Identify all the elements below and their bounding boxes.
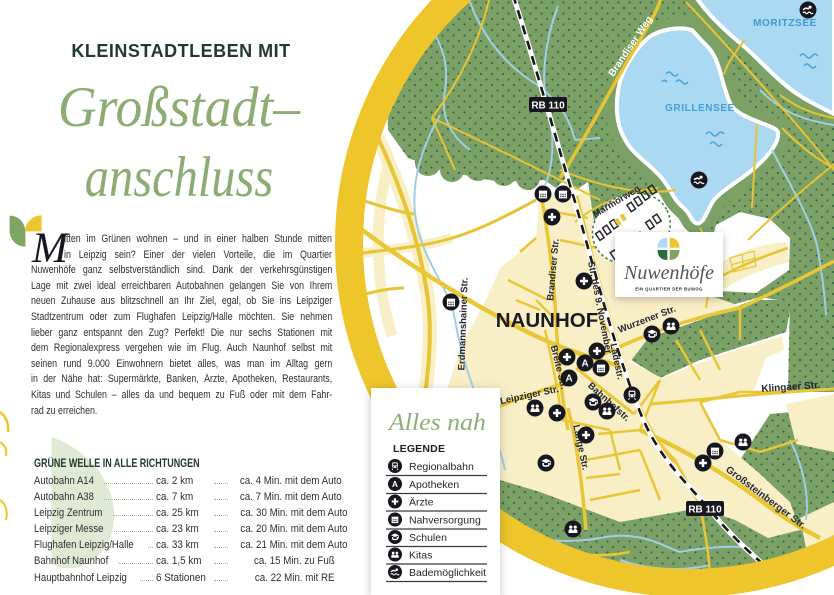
- svg-text:Alles nah: Alles nah: [387, 410, 486, 436]
- svg-text:Apotheken: Apotheken: [409, 479, 459, 491]
- svg-text:Bademöglichkeit: Bademöglichkeit: [409, 567, 486, 579]
- svg-text:NAUNHOF: NAUNHOF: [496, 309, 599, 332]
- svg-text:Nuwenhöfe: Nuwenhöfe: [623, 262, 714, 284]
- svg-text:LEGENDE: LEGENDE: [393, 443, 445, 455]
- svg-text:MORITZSEE: MORITZSEE: [753, 18, 817, 29]
- svg-text:RB 110: RB 110: [531, 101, 565, 112]
- svg-text:Ärzte: Ärzte: [409, 497, 434, 509]
- svg-text:Schulen: Schulen: [409, 532, 447, 544]
- svg-text:Kitas: Kitas: [409, 550, 432, 562]
- svg-text:EIN QUARTIER DER BUWOG: EIN QUARTIER DER BUWOG: [635, 287, 703, 292]
- svg-text:GRILLENSEE: GRILLENSEE: [665, 103, 735, 114]
- svg-text:RB 110: RB 110: [688, 505, 722, 516]
- svg-text:Nahversorgung: Nahversorgung: [409, 515, 481, 527]
- svg-text:Regionalbahn: Regionalbahn: [409, 461, 474, 473]
